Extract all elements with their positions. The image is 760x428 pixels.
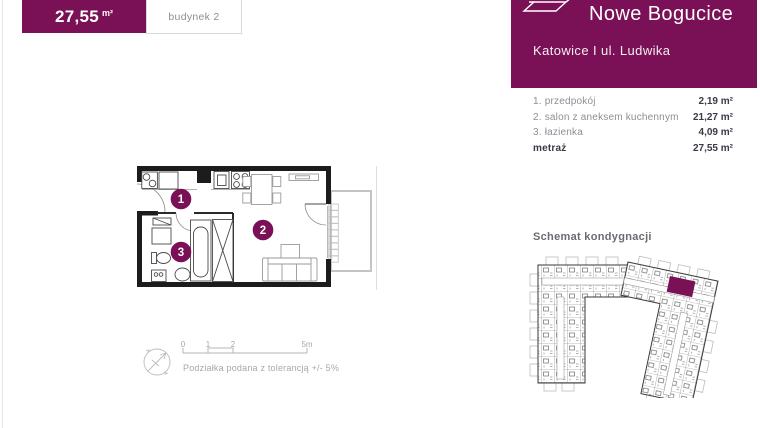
- scale-tick-1: 1: [206, 340, 211, 349]
- room-row: 3. łazienka 4,09 m²: [533, 127, 733, 143]
- room-label: 3. łazienka: [533, 127, 583, 138]
- brand-header: Nowe Bogucice Katowice I ul. Ludwika: [511, 0, 757, 88]
- schematic-title: Schemat kondygnacji: [533, 231, 652, 243]
- unit-area-badge: 27,55 m²: [22, 0, 146, 33]
- scale-tick-2: 2: [231, 340, 236, 349]
- room-badge-2: 2: [260, 225, 266, 237]
- balcony-door-arc: [305, 204, 326, 225]
- living-room-furniture: [263, 245, 318, 282]
- scale-ruler: 0 1 2 5m: [181, 340, 313, 353]
- bathroom-fixtures: [152, 218, 234, 282]
- room-row: 1. przedpokój 2,19 m²: [533, 96, 733, 112]
- kitchen-fixtures: [142, 172, 250, 190]
- room-area: 4,09 m²: [699, 127, 733, 138]
- north-arrow-icon: [144, 349, 170, 375]
- project-location: Katowice I ul. Ludwika: [533, 43, 670, 58]
- floorplan-sheet: 27,55 m² budynek 2 Nowe Bogucice Katowic…: [0, 0, 760, 428]
- scale-bar: 0 1 2 5m: [138, 333, 338, 385]
- room-badge-3: 3: [178, 247, 184, 259]
- room-area: 2,19 m²: [699, 96, 733, 107]
- scale-tick-5m: 5m: [301, 340, 312, 349]
- nowe-bogucice-logo-icon: [521, 0, 579, 44]
- unit-area-unit: m²: [102, 8, 113, 18]
- total-area-row: metraż 27,55 m²: [533, 143, 733, 159]
- unit-area-value: 27,55: [55, 7, 99, 27]
- total-area: 27,55 m²: [693, 143, 733, 154]
- building-label: budynek 2: [168, 11, 219, 23]
- room-label: 1. przedpokój: [533, 96, 596, 107]
- apartment-floor-plan: 1 2 3: [130, 160, 380, 295]
- room-row: 2. salon z aneksem kuchennym 21,27 m²: [533, 112, 733, 128]
- room-badge-1: 1: [178, 194, 185, 206]
- scale-tick-0: 0: [181, 340, 186, 349]
- balcony: [329, 166, 377, 290]
- room-list: 1. przedpokój 2,19 m² 2. salon z aneksem…: [511, 92, 757, 158]
- building-badge: budynek 2: [146, 0, 242, 34]
- dining-furniture: [243, 174, 319, 205]
- project-name: Nowe Bogucice: [589, 3, 733, 26]
- total-label: metraż: [533, 143, 566, 154]
- room-label: 2. salon z aneksem kuchennym: [533, 112, 679, 123]
- page-edge-divider: [2, 0, 3, 428]
- tolerance-note: Podziałka podana z tolerancją +/- 5%: [183, 363, 339, 373]
- room-area: 21,27 m²: [693, 112, 733, 123]
- floor-schematic-graphic: [528, 252, 758, 398]
